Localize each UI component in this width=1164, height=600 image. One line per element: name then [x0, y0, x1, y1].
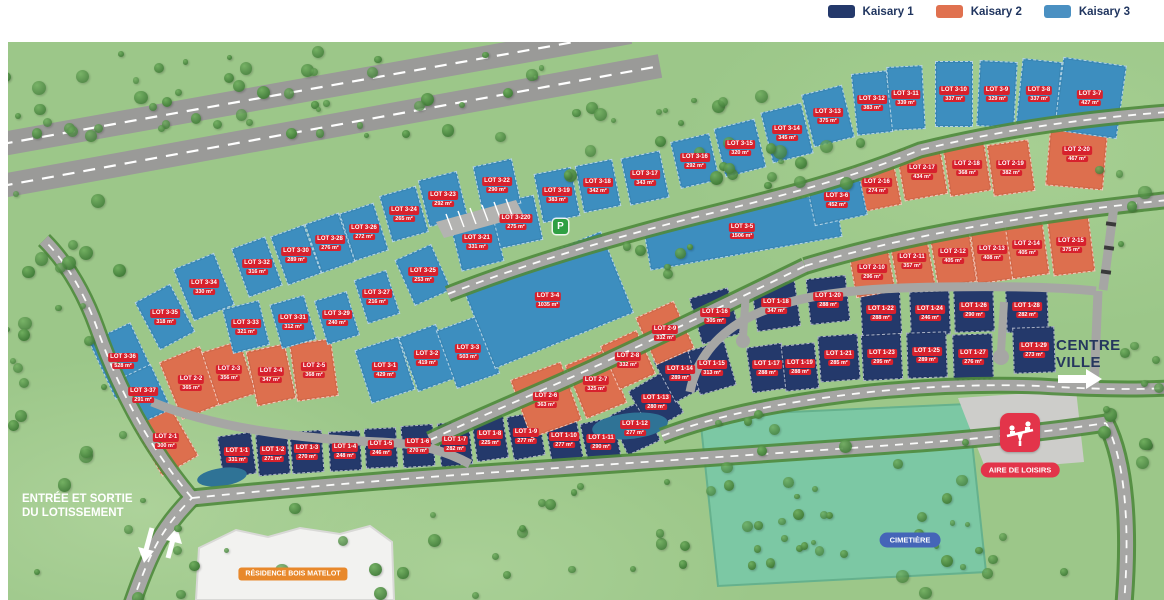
map-canvas: LOT 1-1331 m²LOT 1-2271 m²LOT 1-3270 m²L…: [0, 0, 1164, 600]
entrance-label: ENTRÉE ET SORTIE DU LOTISSEMENT: [22, 492, 162, 520]
legend-swatch-kaisary-2: [936, 5, 963, 18]
left-margin: [0, 42, 8, 600]
legend-label-kaisary-2: Kaisary 2: [971, 6, 1022, 18]
playground-icon: [1000, 413, 1040, 452]
header-band: Kaisary 1Kaisary 2Kaisary 3: [0, 0, 1164, 42]
legend-swatch-kaisary-3: [1044, 5, 1071, 18]
legend: Kaisary 1Kaisary 2Kaisary 3: [828, 5, 1130, 18]
cemetery-badge: CIMETIÈRE: [880, 533, 941, 548]
legend-item-kaisary-3: Kaisary 3: [1044, 5, 1130, 18]
entrance-label-line2: DU LOTISSEMENT: [22, 506, 162, 520]
entrance-label-line1: ENTRÉE ET SORTIE: [22, 492, 162, 506]
site-plan: LOT 1-1331 m²LOT 1-2271 m²LOT 1-3270 m²L…: [0, 0, 1164, 600]
residence-badge: RÉSIDENCE BOIS MATELOT: [238, 568, 347, 581]
centre-ville-line1: CENTRE: [1056, 337, 1121, 354]
parking-icon: P: [553, 219, 568, 234]
legend-item-kaisary-2: Kaisary 2: [936, 5, 1022, 18]
legend-label-kaisary-1: Kaisary 1: [863, 6, 914, 18]
centre-ville-line2: VILLE: [1056, 354, 1121, 371]
badges-layer: ENTRÉE ET SORTIE DU LOTISSEMENT CENTRE V…: [0, 0, 1164, 600]
centre-ville-label: CENTRE VILLE: [1056, 337, 1121, 371]
legend-item-kaisary-1: Kaisary 1: [828, 5, 914, 18]
legend-swatch-kaisary-1: [828, 5, 855, 18]
legend-label-kaisary-3: Kaisary 3: [1079, 6, 1130, 18]
playground-badge: AIRE DE LOISIRS: [981, 463, 1060, 478]
seesaw-glyph: [1005, 419, 1035, 447]
